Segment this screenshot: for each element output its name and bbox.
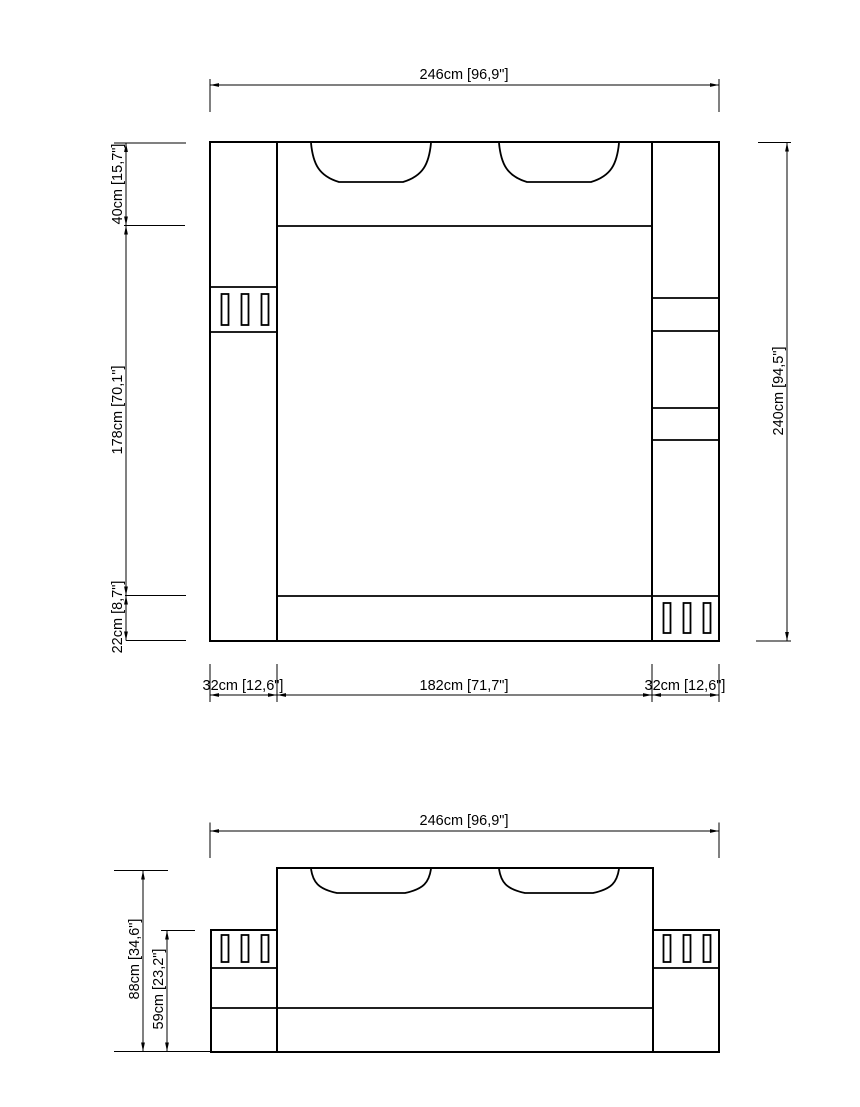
front-left-vent-slot-3: [262, 935, 269, 962]
front-right-vent-slot-3: [704, 935, 711, 962]
front-left-vent-slot-2: [242, 935, 249, 962]
front-pillow-recess-right: [499, 869, 619, 893]
front-pillow-recess-left: [311, 869, 431, 893]
plan-dim-32-right-label: 32cm [12,6"]: [645, 678, 726, 694]
front-right-vent-slot-2: [684, 935, 691, 962]
plan-right-vent-slot-1: [664, 603, 671, 633]
plan-left-vent-slot-1: [222, 294, 229, 325]
front-view-dimensions: 246cm [96,9"] 88cm [34,6"] 59cm [23,2"]: [114, 813, 719, 1052]
plan-pillow-recess-right: [499, 143, 619, 182]
front-dim-width-label: 246cm [96,9"]: [420, 813, 509, 829]
plan-dim-width-label: 246cm [96,9"]: [420, 67, 509, 83]
top-view-drawing: [210, 142, 719, 641]
front-dim-59-label: 59cm [23,2"]: [151, 949, 167, 1030]
front-view-drawing: [211, 868, 719, 1052]
plan-left-vent-slot-2: [242, 294, 249, 325]
plan-left-vent-slot-3: [262, 294, 269, 325]
plan-outer-outline: [210, 142, 719, 641]
front-headboard-outline: [277, 868, 653, 1052]
plan-right-vent-slot-3: [704, 603, 711, 633]
front-dim-88-label: 88cm [34,6"]: [127, 919, 143, 1000]
plan-dim-182-label: 182cm [71,7"]: [420, 678, 509, 694]
bed-dimension-drawing: 246cm [96,9"] 40cm [15,7"] 178cm [70,1"]…: [0, 0, 860, 1102]
plan-dim-32-left-label: 32cm [12,6"]: [203, 678, 284, 694]
front-left-vent-slot-1: [222, 935, 229, 962]
plan-dim-40-label: 40cm [15,7"]: [110, 144, 126, 225]
plan-right-vent-slot-2: [684, 603, 691, 633]
technical-drawing-page: 246cm [96,9"] 40cm [15,7"] 178cm [70,1"]…: [0, 0, 860, 1102]
plan-dim-22-label: 22cm [8,7"]: [110, 581, 126, 654]
plan-pillow-recess-left: [311, 143, 431, 182]
front-right-vent-slot-1: [664, 935, 671, 962]
plan-dim-178-label: 178cm [70,1"]: [110, 366, 126, 455]
plan-dim-height-label: 240cm [94,5"]: [771, 347, 787, 436]
